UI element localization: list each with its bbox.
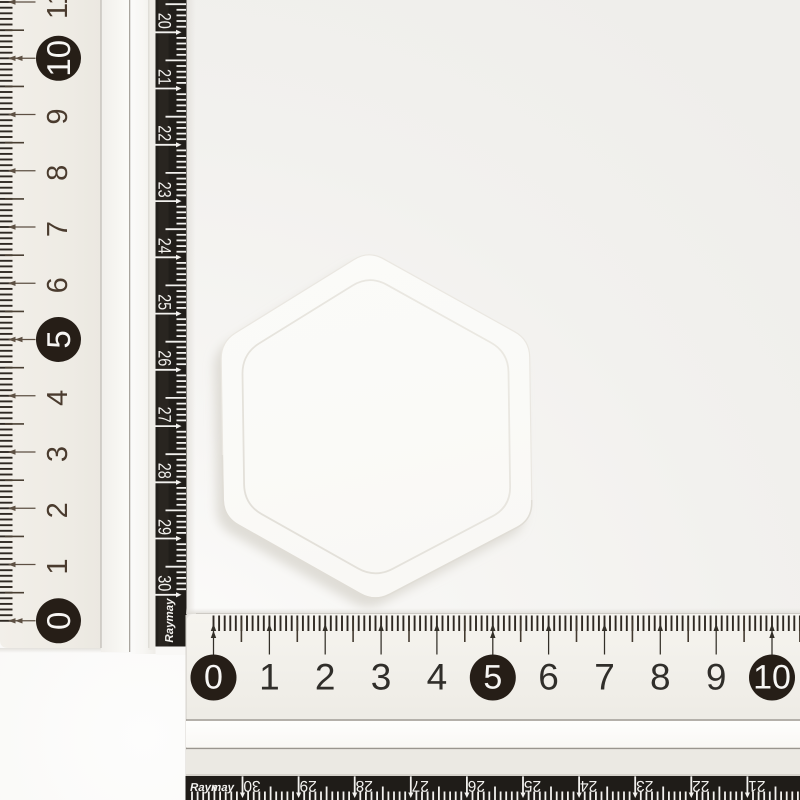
svg-text:21: 21 <box>155 69 175 85</box>
svg-text:0: 0 <box>204 659 223 697</box>
svg-text:24: 24 <box>580 777 598 794</box>
svg-text:20: 20 <box>155 13 175 29</box>
svg-text:28: 28 <box>155 463 175 479</box>
svg-text:0: 0 <box>40 612 77 630</box>
svg-text:7: 7 <box>42 221 74 237</box>
svg-text:6: 6 <box>42 277 74 293</box>
svg-text:22: 22 <box>155 125 175 141</box>
svg-text:8: 8 <box>42 165 74 181</box>
svg-text:24: 24 <box>155 238 175 254</box>
svg-text:Raymay: Raymay <box>190 782 235 794</box>
svg-text:4: 4 <box>427 657 448 698</box>
svg-text:7: 7 <box>594 657 615 698</box>
svg-text:30: 30 <box>243 777 261 794</box>
svg-text:22: 22 <box>692 777 709 794</box>
svg-text:27: 27 <box>412 777 429 794</box>
svg-text:23: 23 <box>155 182 175 198</box>
svg-text:8: 8 <box>650 657 671 698</box>
svg-text:9: 9 <box>706 657 727 698</box>
svg-text:2: 2 <box>42 502 74 518</box>
svg-text:25: 25 <box>524 777 541 794</box>
svg-text:28: 28 <box>356 777 373 794</box>
svg-text:Raymay: Raymay <box>164 598 176 643</box>
svg-text:5: 5 <box>40 330 77 348</box>
svg-text:10: 10 <box>753 659 791 697</box>
svg-text:2: 2 <box>315 657 336 698</box>
svg-text:4: 4 <box>42 390 74 406</box>
svg-text:26: 26 <box>155 350 175 366</box>
svg-text:27: 27 <box>155 407 175 423</box>
svg-text:1: 1 <box>42 558 74 574</box>
svg-text:29: 29 <box>155 519 175 535</box>
svg-text:5: 5 <box>483 659 502 697</box>
svg-text:11: 11 <box>42 0 74 19</box>
svg-text:26: 26 <box>468 777 485 794</box>
svg-text:1: 1 <box>259 657 280 698</box>
svg-text:30: 30 <box>155 575 175 591</box>
svg-text:3: 3 <box>42 446 74 462</box>
svg-text:21: 21 <box>748 777 765 794</box>
svg-text:25: 25 <box>155 294 175 310</box>
svg-text:9: 9 <box>42 108 74 124</box>
svg-text:23: 23 <box>636 777 653 794</box>
svg-text:6: 6 <box>538 657 559 698</box>
svg-text:10: 10 <box>40 40 77 77</box>
svg-text:3: 3 <box>371 657 392 698</box>
svg-text:29: 29 <box>299 777 316 794</box>
